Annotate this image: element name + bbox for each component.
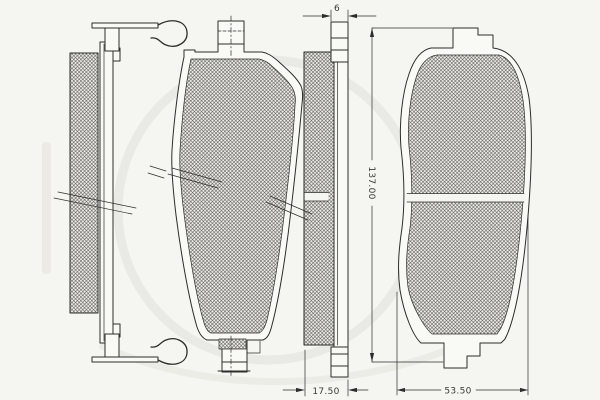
plate-tab-bottom	[331, 347, 348, 377]
dimension-plate-thickness: 6	[303, 4, 376, 21]
drawing-canvas: 6 137.00 17.50 53.50	[0, 0, 600, 400]
center-groove	[406, 194, 525, 203]
brake-pad-technical-drawing: 6 137.00 17.50 53.50	[0, 0, 600, 400]
dimension-label-17-50: 17.50	[312, 387, 339, 397]
plate-tab-top	[331, 22, 348, 62]
spring-clip-top	[92, 21, 187, 51]
dimension-label-137: 137.00	[366, 166, 376, 199]
spring-clip-bottom	[92, 334, 187, 364]
friction-material-edge	[70, 53, 98, 313]
scan-smudge	[42, 142, 51, 274]
dimension-label-6: 6	[334, 4, 340, 14]
backing-plate-edge	[100, 42, 113, 343]
pad-front-view-right	[399, 28, 532, 368]
center-groove	[305, 193, 329, 202]
dimension-label-53-50: 53.50	[444, 387, 471, 397]
backing-plate-edge	[334, 52, 348, 347]
